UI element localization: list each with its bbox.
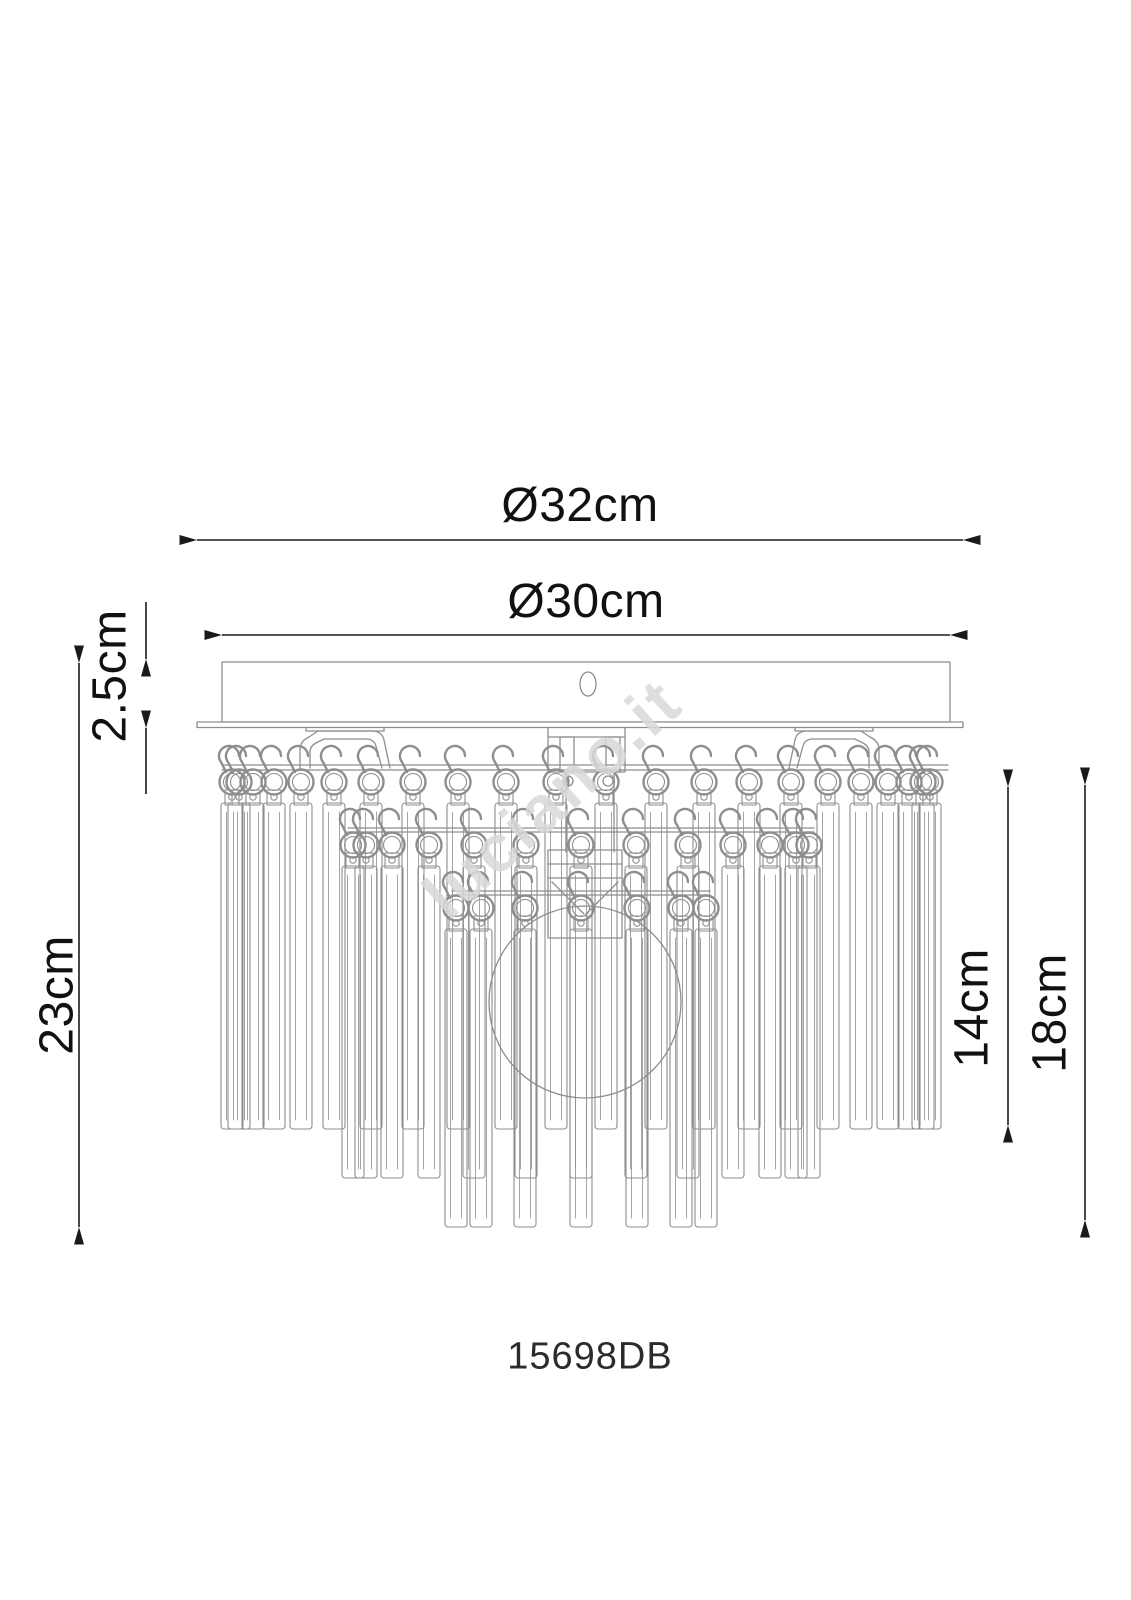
model-number: 15698DB bbox=[507, 1336, 672, 1379]
mounting-bracket-right bbox=[789, 727, 879, 768]
label-crystal-drop: 18cm bbox=[1023, 953, 1078, 1072]
ceiling-plate bbox=[197, 662, 963, 728]
label-total-height: 23cm bbox=[30, 935, 85, 1054]
label-first-tier-drop: 14cm bbox=[945, 948, 1000, 1067]
lamp-socket bbox=[548, 850, 622, 938]
label-canopy-height: 2.5cm bbox=[83, 609, 138, 742]
label-outer-diameter: Ø32cm bbox=[197, 478, 963, 533]
dimension-drawing-page: Ø32cm Ø30cm 2.5cm 23cm 14cm 18cm luciano… bbox=[0, 0, 1131, 1600]
label-canopy-diameter: Ø30cm bbox=[222, 574, 950, 629]
light-bulb bbox=[489, 906, 681, 1098]
mounting-bracket-left bbox=[300, 727, 390, 768]
